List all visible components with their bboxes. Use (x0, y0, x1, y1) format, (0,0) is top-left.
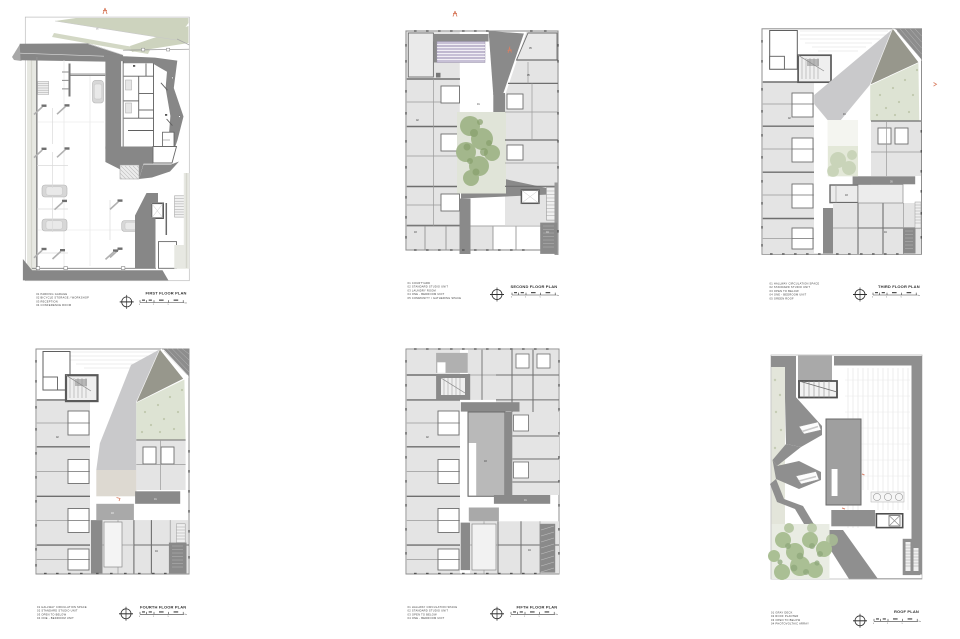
svg-text:03 RECEPTION: 03 RECEPTION (36, 299, 58, 303)
svg-text:FIRST FLOOR PLAN: FIRST FLOOR PLAN (146, 291, 187, 296)
svg-text:01 PARKING GARAGE: 01 PARKING GARAGE (36, 292, 67, 296)
svg-text:03 OPEN TO BELOW: 03 OPEN TO BELOW (408, 612, 438, 616)
svg-text:04 ONE - BEDROOM UNIT: 04 ONE - BEDROOM UNIT (408, 616, 445, 620)
svg-text:01 COURTYARD: 01 COURTYARD (408, 281, 431, 285)
svg-text:02 ROOF PLANTER: 02 ROOF PLANTER (771, 614, 799, 618)
svg-text:FIFTH FLOOR PLAN: FIFTH FLOOR PLAN (517, 604, 558, 609)
svg-text:03 LAUNDRY ROOM: 03 LAUNDRY ROOM (408, 288, 436, 292)
svg-text:01 HALLWAY CIRCULATION SPACE: 01 HALLWAY CIRCULATION SPACE (770, 281, 820, 285)
svg-text:01 GRAY DECK: 01 GRAY DECK (771, 610, 793, 614)
svg-text:03 OPEN TO BELOW: 03 OPEN TO BELOW (771, 618, 801, 622)
svg-text:04 ONE - BEDROOM UNIT: 04 ONE - BEDROOM UNIT (408, 292, 445, 296)
svg-text:04 ONE - BEDROOM UNIT: 04 ONE - BEDROOM UNIT (770, 293, 807, 297)
svg-text:01 HALLWAY CIRCULATION SPACE: 01 HALLWAY CIRCULATION SPACE (408, 605, 458, 609)
svg-text:04 PHOTOVOLTAIC ARRAY: 04 PHOTOVOLTAIC ARRAY (771, 622, 809, 626)
svg-text:THIRD FLOOR PLAN: THIRD FLOOR PLAN (878, 284, 920, 289)
svg-text:05 COMMUNITY / GATHERING SPAC: 05 COMMUNITY / GATHERING SPACE (408, 296, 462, 300)
svg-text:02 STANDARD STUDIO UNIT: 02 STANDARD STUDIO UNIT (37, 609, 78, 613)
svg-text:ROOF PLAN: ROOF PLAN (894, 609, 919, 614)
svg-text:02 BICYCLE STORAGE / WORKSHOP: 02 BICYCLE STORAGE / WORKSHOP (36, 296, 89, 300)
svg-text:02 STANDARD STUDIO UNIT: 02 STANDARD STUDIO UNIT (770, 285, 811, 289)
svg-text:02 STANDARD STUDIO UNIT: 02 STANDARD STUDIO UNIT (408, 285, 449, 289)
svg-text:SECOND FLOOR PLAN: SECOND FLOOR PLAN (511, 284, 558, 289)
svg-text:04 CONFERENCE ROOM: 04 CONFERENCE ROOM (36, 303, 71, 307)
svg-text:FOURTH FLOOR PLAN: FOURTH FLOOR PLAN (140, 604, 186, 609)
svg-text:04 ONE - BEDROOM UNIT: 04 ONE - BEDROOM UNIT (37, 616, 74, 620)
svg-text:01 HALLWAY CIRCULATION SPACE: 01 HALLWAY CIRCULATION SPACE (37, 605, 87, 609)
svg-text:02 STANDARD STUDIO UNIT: 02 STANDARD STUDIO UNIT (408, 609, 449, 613)
svg-text:03 OPEN TO BELOW: 03 OPEN TO BELOW (770, 289, 800, 293)
svg-text:03 OPEN TO BELOW: 03 OPEN TO BELOW (37, 612, 67, 616)
svg-text:05 GREEN ROOF: 05 GREEN ROOF (770, 296, 794, 300)
